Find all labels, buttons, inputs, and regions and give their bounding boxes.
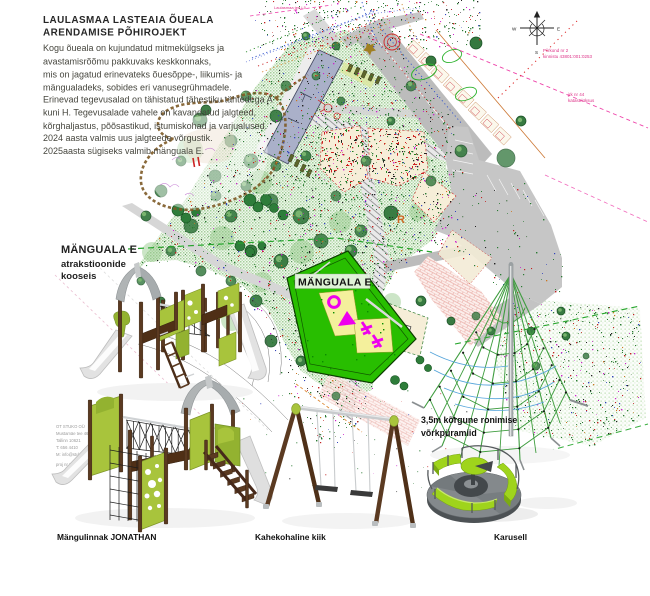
- svg-text:atrakstioonide: atrakstioonide: [61, 259, 126, 270]
- svg-text:MÄNGUALA E: MÄNGUALA E: [61, 243, 137, 256]
- svg-text:kuni H. Tegevusalade vahele on: kuni H. Tegevusalade vahele on kavandatu…: [43, 108, 256, 118]
- svg-text:R: R: [397, 214, 405, 226]
- svg-text:kooseis: kooseis: [61, 271, 96, 282]
- svg-text:T: 656 4410: T: 656 4410: [56, 445, 79, 450]
- svg-text:mängualadeks, sobides eri vanu: mängualadeks, sobides eri vanusegrühmade…: [43, 82, 232, 92]
- svg-text:MÄNGUALA E: MÄNGUALA E: [298, 276, 372, 289]
- svg-text:E: E: [557, 27, 560, 32]
- svg-text:W: W: [512, 27, 517, 32]
- svg-text:ARENDAMISE PÕHIROJEKT: ARENDAMISE PÕHIROJEKT: [43, 28, 187, 39]
- svg-text:OT STUKO OÜ: OT STUKO OÜ: [56, 424, 85, 429]
- svg-text:Tallinn 10621: Tallinn 10621: [56, 438, 81, 443]
- svg-text:kõrghaljastus, põõsastikud, i: kõrghaljastus, põõsastikud, istumiskohad…: [43, 121, 267, 131]
- svg-text:Piirkond nr 2: Piirkond nr 2: [543, 48, 569, 53]
- svg-text:3,5m kõrgune ronimise: 3,5m kõrgune ronimise: [421, 415, 517, 425]
- svg-text:Kogu õueala on kujundatud mitm: Kogu õueala on kujundatud mitmekülgseks …: [43, 43, 224, 53]
- svg-text:mis on jagatud erinevateks õue: mis on jagatud erinevateks õuesõppe-, li…: [43, 70, 242, 80]
- svg-text:S: S: [535, 50, 538, 55]
- svg-text:LAULASMAA LASTEAIA ÕUEALA: LAULASMAA LASTEAIA ÕUEALA: [43, 15, 214, 26]
- svg-text:2024 aasta valmis uus jalgteed: 2024 aasta valmis uus jalgteede võrgusti…: [43, 133, 213, 143]
- svg-text:Erinevad tegevusalad on tähist: Erinevad tegevusalad on tähistatud tähes…: [43, 94, 273, 104]
- svg-text:avastamisrõõmu pakkuvaks keskk: avastamisrõõmu pakkuvaks keskkonnaks,: [43, 56, 211, 66]
- svg-text:jrk nr 44: jrk nr 44: [567, 92, 585, 97]
- svg-text:Mustamäe tee 46: Mustamäe tee 46: [56, 431, 89, 436]
- svg-text:Karusell: Karusell: [494, 532, 527, 542]
- svg-text:kinnistu 43801:001:0253: kinnistu 43801:001:0253: [543, 54, 593, 59]
- svg-text:2025aasta sügiseks valmib mäng: 2025aasta sügiseks valmib mänguala E.: [43, 146, 204, 156]
- svg-text:Kahekohaline kiik: Kahekohaline kiik: [255, 532, 326, 542]
- svg-text:võrkpüramiid: võrkpüramiid: [421, 428, 477, 438]
- svg-text:katastriüksus: katastriüksus: [568, 98, 595, 103]
- svg-text:Mängulinnak JONATHAN: Mängulinnak JONATHAN: [57, 532, 156, 542]
